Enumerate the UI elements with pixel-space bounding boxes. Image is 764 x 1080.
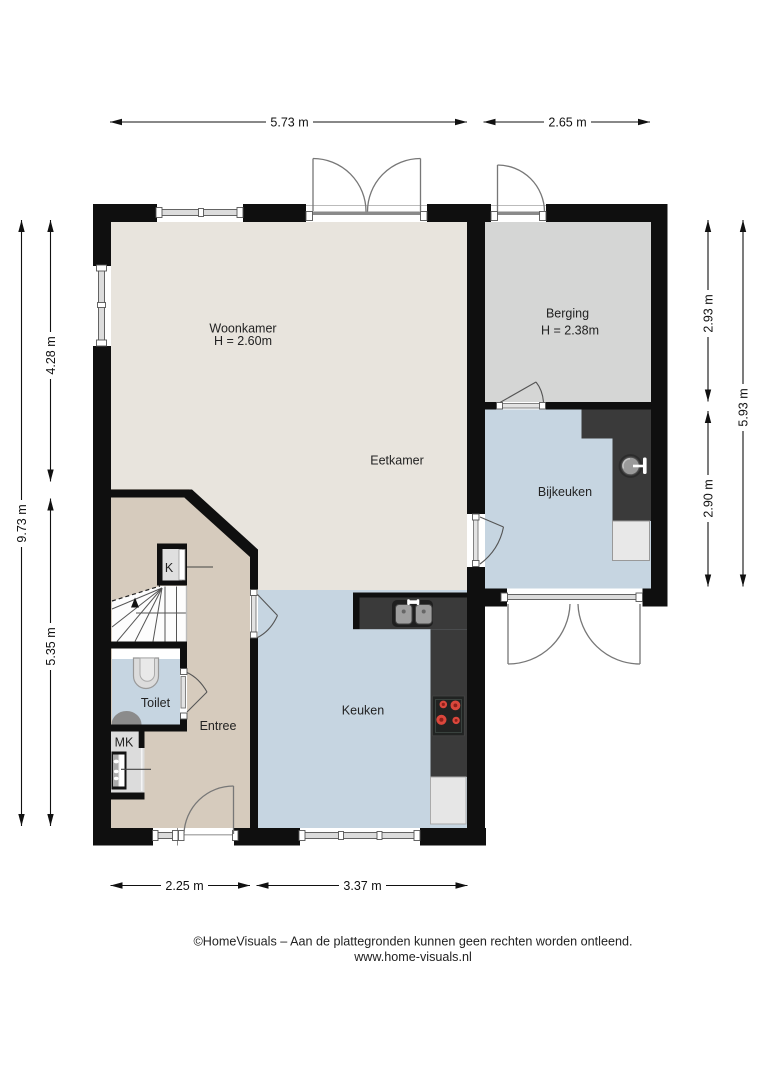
svg-text:Entree: Entree <box>200 719 237 733</box>
svg-text:2.65 m: 2.65 m <box>548 116 586 130</box>
svg-text:H = 2.60m: H = 2.60m <box>214 334 272 348</box>
svg-text:Berging: Berging <box>546 307 589 321</box>
svg-text:K: K <box>165 561 174 575</box>
svg-text:5.93 m: 5.93 m <box>737 388 751 426</box>
svg-text:Bijkeuken: Bijkeuken <box>538 485 592 499</box>
svg-text:9.73 m: 9.73 m <box>15 504 29 542</box>
svg-text:5.35 m: 5.35 m <box>44 627 58 665</box>
svg-text:H = 2.38m: H = 2.38m <box>541 324 599 338</box>
svg-text:2.25 m: 2.25 m <box>165 879 203 893</box>
svg-text:5.73 m: 5.73 m <box>270 116 308 130</box>
svg-text:2.93 m: 2.93 m <box>702 294 716 332</box>
svg-text:Eetkamer: Eetkamer <box>370 454 424 468</box>
svg-text:Keuken: Keuken <box>342 704 384 718</box>
svg-text:4.28 m: 4.28 m <box>44 336 58 374</box>
svg-text:3.37 m: 3.37 m <box>343 879 381 893</box>
svg-text:Toilet: Toilet <box>141 696 171 710</box>
svg-text:www.home-visuals.nl: www.home-visuals.nl <box>353 950 472 964</box>
svg-text:MK: MK <box>115 736 134 750</box>
svg-text:2.90 m: 2.90 m <box>702 479 716 517</box>
svg-text:©HomeVisuals – Aan de plattegr: ©HomeVisuals – Aan de plattegronden kunn… <box>194 935 633 949</box>
